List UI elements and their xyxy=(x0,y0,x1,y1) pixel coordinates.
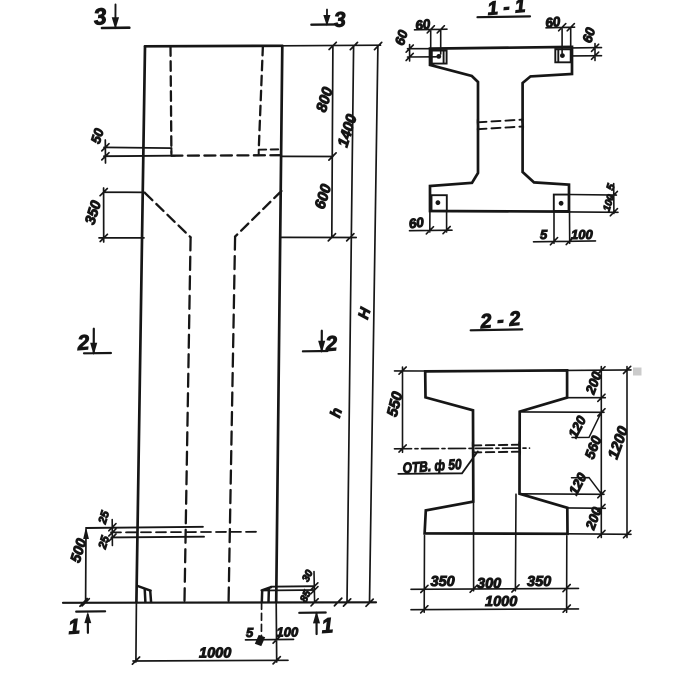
svg-text:2: 2 xyxy=(324,332,339,356)
svg-text:60: 60 xyxy=(414,16,431,33)
svg-text:350: 350 xyxy=(431,574,455,590)
svg-text:100: 100 xyxy=(277,625,299,640)
svg-text:1: 1 xyxy=(67,615,80,639)
svg-text:5: 5 xyxy=(246,625,254,640)
svg-text:1: 1 xyxy=(321,614,334,638)
svg-text:2: 2 xyxy=(76,331,91,355)
svg-text:3: 3 xyxy=(333,8,347,32)
svg-text:1000: 1000 xyxy=(485,594,517,610)
svg-text:300: 300 xyxy=(477,576,501,592)
svg-text:60: 60 xyxy=(408,214,425,231)
svg-text:60: 60 xyxy=(544,14,561,31)
svg-text:100: 100 xyxy=(571,227,593,242)
svg-text:350: 350 xyxy=(527,574,551,590)
svg-text:1000: 1000 xyxy=(199,646,231,662)
svg-text:5: 5 xyxy=(540,227,548,242)
